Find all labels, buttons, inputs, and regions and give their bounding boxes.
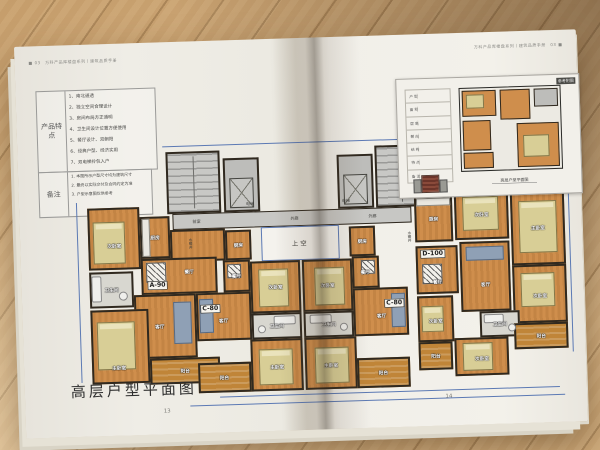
room-label: 次卧室 bbox=[107, 242, 121, 249]
unit-label-c80: C-80 bbox=[384, 298, 404, 307]
room-label: 阳台 bbox=[431, 352, 441, 359]
dimension-line bbox=[76, 203, 83, 383]
room-label: 外廊 bbox=[290, 215, 298, 221]
inset-caption: 高层户型平面图 bbox=[492, 177, 537, 184]
kitchen-counter bbox=[416, 197, 450, 206]
inset-table-row: 朝 向 bbox=[407, 129, 451, 144]
room-label: 水暖井 bbox=[187, 238, 193, 249]
features-table-header: 产品特点 bbox=[36, 91, 67, 172]
page-number: 14 bbox=[445, 393, 452, 399]
inset-row-label: 朝 向 bbox=[411, 133, 418, 139]
inset-room bbox=[500, 89, 531, 120]
inset-row-label: 户 型 bbox=[410, 94, 417, 100]
inset-room bbox=[534, 88, 559, 107]
inset-row-label: 层 高 bbox=[411, 120, 418, 126]
left-page-header: ■ 03 万科产品库楼盘系列丨建筑品质手册 bbox=[28, 58, 117, 66]
inset-room bbox=[463, 120, 492, 151]
room-label: 卫生间 bbox=[270, 322, 284, 329]
page-caption: 高层户型平面图 bbox=[71, 377, 198, 402]
unit-label-a90: A-90 bbox=[148, 281, 168, 290]
room-label: 客厅 bbox=[155, 323, 165, 330]
room-label: 次卧室 bbox=[475, 355, 489, 362]
room-label: 主卧室 bbox=[531, 224, 545, 231]
inset-row-label: 特 点 bbox=[412, 160, 419, 166]
building-elevation-thumbnail bbox=[413, 174, 454, 193]
stair-rail bbox=[193, 156, 196, 208]
bed bbox=[523, 134, 550, 157]
wood-desk-photo: ■ 03 万科产品库楼盘系列丨建筑品质手册 万科产品库楼盘系列丨建筑品质手册 0… bbox=[0, 0, 600, 450]
inset-corner-label: 参考附图 bbox=[556, 77, 575, 84]
room-label: 上空 bbox=[292, 238, 309, 248]
room-label: 卫生间 bbox=[493, 320, 507, 327]
inset-floor-plan bbox=[458, 85, 563, 172]
dining-table bbox=[146, 262, 167, 283]
sofa bbox=[465, 246, 503, 261]
room-label: 厨房 bbox=[150, 234, 160, 241]
elevation-tower bbox=[421, 175, 440, 194]
bathtub bbox=[91, 276, 102, 302]
elevation-wing bbox=[439, 179, 447, 192]
room-label: 阳台 bbox=[537, 332, 547, 339]
page-number: 13 bbox=[164, 408, 171, 414]
room-label: 餐厅 bbox=[360, 268, 370, 275]
stairwell-left bbox=[165, 151, 221, 215]
notes-table-header: 备注 bbox=[39, 172, 69, 217]
unit-label-d100: D-100 bbox=[420, 249, 445, 258]
room-label: 厨房 bbox=[357, 238, 367, 245]
inset-table-row: 面 积 bbox=[406, 103, 450, 118]
bed bbox=[97, 321, 136, 370]
bed bbox=[466, 94, 484, 109]
room-label: 电梯 bbox=[246, 201, 254, 207]
inset-row-label: 面 积 bbox=[410, 107, 417, 113]
inset-card: 参考附图 户 型 面 积 层 高 朝 向 结 构 特 点 备 注 高层户型平面图 bbox=[395, 73, 583, 199]
room-label: 次卧室 bbox=[533, 292, 547, 299]
room-label: 卫生间 bbox=[105, 286, 119, 293]
room-label: 客厅 bbox=[481, 281, 491, 288]
room-label: 主卧室 bbox=[270, 363, 284, 370]
inset-row-label: 结 构 bbox=[412, 147, 419, 153]
kitchen-counter bbox=[141, 219, 150, 257]
room-label: 主卧室 bbox=[324, 362, 338, 369]
room-label: 次卧室 bbox=[474, 211, 488, 218]
room-label: 次卧室 bbox=[320, 282, 334, 289]
room-label: 次卧室 bbox=[429, 317, 443, 324]
inset-room bbox=[464, 152, 494, 169]
room-label: 阳台 bbox=[220, 374, 230, 381]
sofa bbox=[173, 301, 192, 344]
unit-label-c80: C-80 bbox=[200, 304, 220, 313]
right-page-header: 万科产品库楼盘系列丨建筑品质手册 03 ■ bbox=[473, 42, 562, 50]
inset-table: 户 型 面 积 层 高 朝 向 结 构 特 点 备 注 bbox=[405, 88, 454, 183]
room-label: 客厅 bbox=[377, 312, 387, 319]
room-label: 主卧室 bbox=[112, 364, 126, 371]
room-label: 阳台 bbox=[180, 367, 190, 374]
room-label: 卫生间 bbox=[322, 321, 336, 328]
room-label: 客厅 bbox=[219, 317, 229, 324]
room-label: 厨房 bbox=[234, 241, 244, 248]
room-label: 餐厅 bbox=[433, 278, 443, 285]
room-label: 外廊 bbox=[368, 213, 376, 219]
inset-table-row: 结 构 bbox=[407, 142, 451, 157]
room-label: 阳台 bbox=[379, 369, 389, 376]
open-brochure: ■ 03 万科产品库楼盘系列丨建筑品质手册 万科产品库楼盘系列丨建筑品质手册 0… bbox=[14, 29, 588, 438]
room-label: 次卧室 bbox=[269, 283, 283, 290]
room-label: 餐厅 bbox=[232, 273, 242, 280]
room-label: 前室 bbox=[192, 218, 200, 224]
room-label: 电梯 bbox=[342, 198, 350, 204]
bed bbox=[520, 272, 555, 307]
room-label: 水暖井 bbox=[406, 231, 412, 242]
dimension-line bbox=[568, 184, 574, 352]
room-label: 餐厅 bbox=[184, 268, 194, 275]
room-label: 厨房 bbox=[429, 215, 439, 222]
